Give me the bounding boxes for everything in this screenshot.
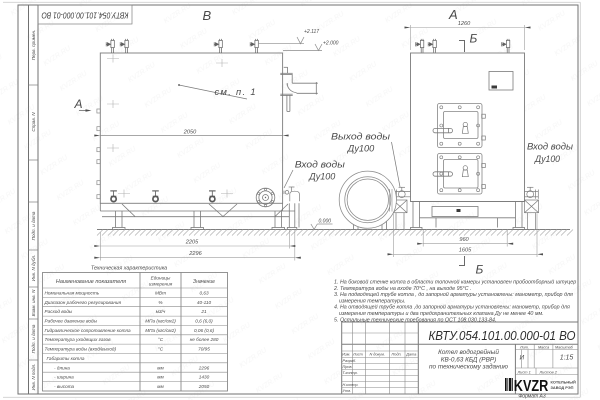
svg-text:В: В xyxy=(203,8,212,23)
svg-text:измерения температуры.: измерения температуры. xyxy=(339,298,406,304)
svg-text:Рабочее давление воды: Рабочее давление воды xyxy=(45,319,98,324)
svg-text:Б: Б xyxy=(470,32,478,46)
svg-text:Температура уходящих газов: Температура уходящих газов xyxy=(45,337,112,342)
svg-text:КВТУ.054.101.00.000-01 ВО: КВТУ.054.101.00.000-01 ВО xyxy=(429,329,576,343)
svg-text:Справ. N: Справ. N xyxy=(31,112,36,132)
svg-text:измерения температуры и два пр: измерения температуры и два предохраните… xyxy=(339,311,544,317)
svg-text:измерения: измерения xyxy=(149,282,173,287)
svg-text:Утв.: Утв. xyxy=(343,389,352,393)
svg-text:КВ-0,63 КБД (РВР): КВ-0,63 КБД (РВР) xyxy=(441,356,496,363)
svg-text:Н.контр.: Н.контр. xyxy=(343,383,359,387)
svg-text:Лист 1: Лист 1 xyxy=(517,369,531,374)
svg-text:2296: 2296 xyxy=(188,251,202,257)
svg-text:2205: 2205 xyxy=(185,239,199,245)
svg-text:Ду100: Ду100 xyxy=(534,154,560,165)
svg-text:1:15: 1:15 xyxy=(560,354,574,361)
svg-text:3. На подводящей трубе котла: 3. На подводящей трубе котла , до запорн… xyxy=(334,291,573,298)
svg-text:1260: 1260 xyxy=(458,21,471,27)
svg-text:Выход воды: Выход воды xyxy=(331,132,390,143)
svg-text:мм: мм xyxy=(157,384,164,389)
svg-text:Расход воды: Расход воды xyxy=(45,309,73,314)
svg-text:Лист: Лист xyxy=(352,353,363,357)
svg-text:Диапазон рабочего регулировани: Диапазон рабочего регулирования xyxy=(44,300,122,305)
svg-text:А: А xyxy=(74,97,83,111)
svg-text:Подп.: Подп. xyxy=(392,353,402,357)
svg-text:Перв. примен.: Перв. примен. xyxy=(31,30,36,61)
svg-text:Инв. N дубл.: Инв. N дубл. xyxy=(31,255,36,282)
svg-text:4. На отводящей трубе котла ,: 4. На отводящей трубе котла ,до запорной… xyxy=(334,304,570,311)
svg-text:0.000: 0.000 xyxy=(319,219,332,225)
svg-text:КВТУ.054.101.00.000-01 ВО: КВТУ.054.101.00.000-01 ВО xyxy=(41,10,128,20)
svg-text:N докум.: N докум. xyxy=(370,353,385,357)
svg-text:Вход воды: Вход воды xyxy=(527,141,573,152)
svg-text:Взам. инв. N: Взам. инв. N xyxy=(31,289,36,316)
svg-text:2296: 2296 xyxy=(198,365,210,370)
svg-text:ЗАВОД РЭП: ЗАВОД РЭП xyxy=(551,385,574,390)
svg-text:Дата: Дата xyxy=(405,353,416,357)
svg-text:Б: Б xyxy=(476,263,484,277)
svg-text:Разраб.: Разраб. xyxy=(343,359,357,363)
svg-text:Ду100: Ду100 xyxy=(347,144,375,155)
svg-text:м3/ч: м3/ч xyxy=(156,309,166,314)
svg-text:Техническая характеристика: Техническая характеристика xyxy=(91,266,167,272)
svg-text:0,6 (6,0): 0,6 (6,0) xyxy=(195,319,213,324)
svg-text:Листов 2: Листов 2 xyxy=(539,369,558,374)
svg-text:Подп. и дата: Подп. и дата xyxy=(31,211,36,240)
svg-text:не более 280: не более 280 xyxy=(190,337,219,342)
svg-text:МПа (кгс/см2): МПа (кгс/см2) xyxy=(145,319,176,324)
svg-text:Т.контр.: Т.контр. xyxy=(343,371,358,375)
svg-text:Номинальная мощность: Номинальная мощность xyxy=(45,291,100,296)
svg-text:А: А xyxy=(448,7,458,22)
svg-text:2. Температура воды на входе: 2. Температура воды на входе 70°С , на в… xyxy=(333,286,472,292)
svg-text:Масштаб: Масштаб xyxy=(555,345,574,349)
svg-text:1430: 1430 xyxy=(199,375,210,380)
svg-text:Изм.: Изм. xyxy=(342,353,350,357)
svg-text:70/95: 70/95 xyxy=(198,347,210,352)
svg-text:Пров.: Пров. xyxy=(343,365,353,369)
svg-text:по техническому заданию: по техническому заданию xyxy=(429,362,508,370)
svg-text:- высота: - высота xyxy=(54,384,75,389)
svg-text:°С: °С xyxy=(158,347,164,352)
svg-text:Ду100: Ду100 xyxy=(308,171,336,182)
svg-text:960: 960 xyxy=(459,237,469,243)
svg-text:- ширина: - ширина xyxy=(54,375,74,380)
svg-text:Вход воды: Вход воды xyxy=(295,159,345,170)
svg-text:2050: 2050 xyxy=(183,130,197,136)
svg-text:мм: мм xyxy=(157,375,164,380)
svg-text:Лит.: Лит. xyxy=(519,345,529,349)
svg-text:Масса: Масса xyxy=(538,345,549,349)
svg-text:1605: 1605 xyxy=(459,248,472,254)
svg-text:МВт: МВт xyxy=(155,291,166,296)
svg-text:КОТЕЛЬНЫЙ: КОТЕЛЬНЫЙ xyxy=(551,380,577,385)
svg-text:Температура воды (вход/выход): Температура воды (вход/выход) xyxy=(45,347,117,352)
svg-text:Наименование показателя: Наименование показателя xyxy=(56,279,126,285)
svg-text:Габариты котла: Габариты котла xyxy=(47,356,85,361)
svg-text:И: И xyxy=(520,354,525,361)
svg-text:МПа (кгс/см2): МПа (кгс/см2) xyxy=(145,328,176,333)
svg-text:KVZR: KVZR xyxy=(514,378,549,395)
svg-text:Гидравлическое сопротивление к: Гидравлическое сопротивление котла xyxy=(45,328,132,333)
svg-text:мм: мм xyxy=(157,365,164,370)
svg-text:0,06 (0,6): 0,06 (0,6) xyxy=(194,328,215,333)
svg-text:+2.117: +2.117 xyxy=(304,29,319,35)
svg-text:Котел водогрейный: Котел водогрейный xyxy=(438,348,499,356)
svg-text:- длина: - длина xyxy=(54,365,70,370)
svg-text:1. На боковой стенке котла в: 1. На боковой стенке котла в области топ… xyxy=(334,279,576,286)
svg-text:40-110: 40-110 xyxy=(197,300,212,305)
svg-text:+2.000: +2.000 xyxy=(323,41,339,47)
svg-text:°С: °С xyxy=(158,337,164,342)
svg-text:Инв. N подл.: Инв. N подл. xyxy=(31,364,36,391)
svg-text:Значение: Значение xyxy=(193,279,215,285)
svg-text:Подп. и дата: Подп. и дата xyxy=(31,324,36,353)
svg-text:2050: 2050 xyxy=(198,384,210,389)
svg-text:%: % xyxy=(158,300,162,305)
svg-text:21: 21 xyxy=(200,309,207,314)
svg-text:Единицы: Единицы xyxy=(151,276,171,281)
svg-text:0,63: 0,63 xyxy=(199,291,209,296)
